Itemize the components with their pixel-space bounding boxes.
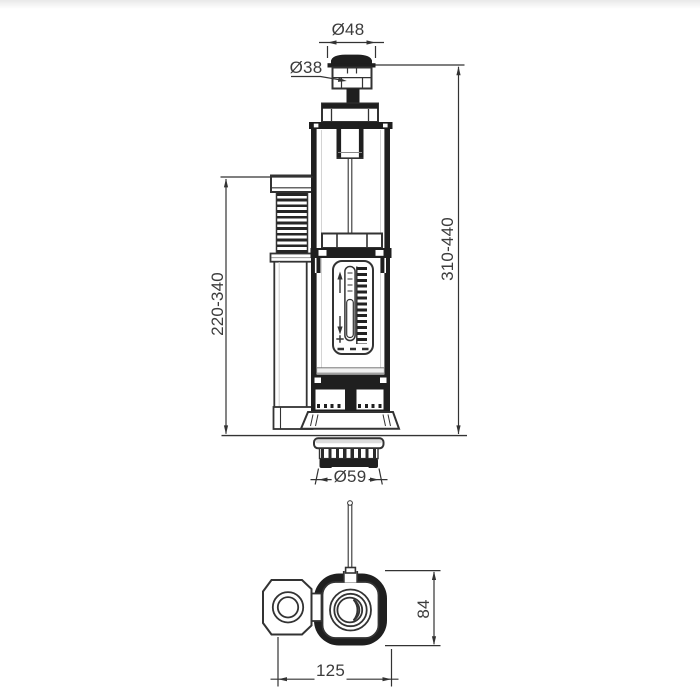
dim-label-button-inner-diameter: Ø38 bbox=[290, 58, 323, 78]
dim-label-total-height: 310-440 bbox=[438, 217, 458, 281]
valve-body bbox=[309, 104, 393, 413]
dim-label-outlet-diameter: Ø59 bbox=[332, 467, 369, 487]
base-valve-assembly bbox=[263, 568, 387, 646]
adjustment-scale-unit bbox=[333, 261, 373, 354]
flush-valve-technical-drawing: Ø48 Ø38 310-440 220-340 Ø59 84 125 bbox=[0, 0, 700, 700]
overflow-pipe-thread-ribs bbox=[277, 193, 307, 253]
cage-window-teeth-right bbox=[358, 404, 382, 409]
dim-label-button-outer-diameter: Ø48 bbox=[332, 20, 365, 40]
dim-label-base-depth: 84 bbox=[414, 599, 434, 618]
valve-line-art bbox=[0, 0, 700, 700]
valve-lower-cage bbox=[301, 368, 399, 429]
connecting-rod bbox=[348, 501, 353, 575]
cage-window-teeth-left bbox=[317, 404, 343, 409]
dim-label-base-width: 125 bbox=[314, 661, 347, 681]
outlet-thread-ribs bbox=[321, 449, 378, 457]
dim-label-overflow-height: 220-340 bbox=[208, 272, 228, 336]
adjustment-scale-ticks bbox=[357, 267, 367, 344]
